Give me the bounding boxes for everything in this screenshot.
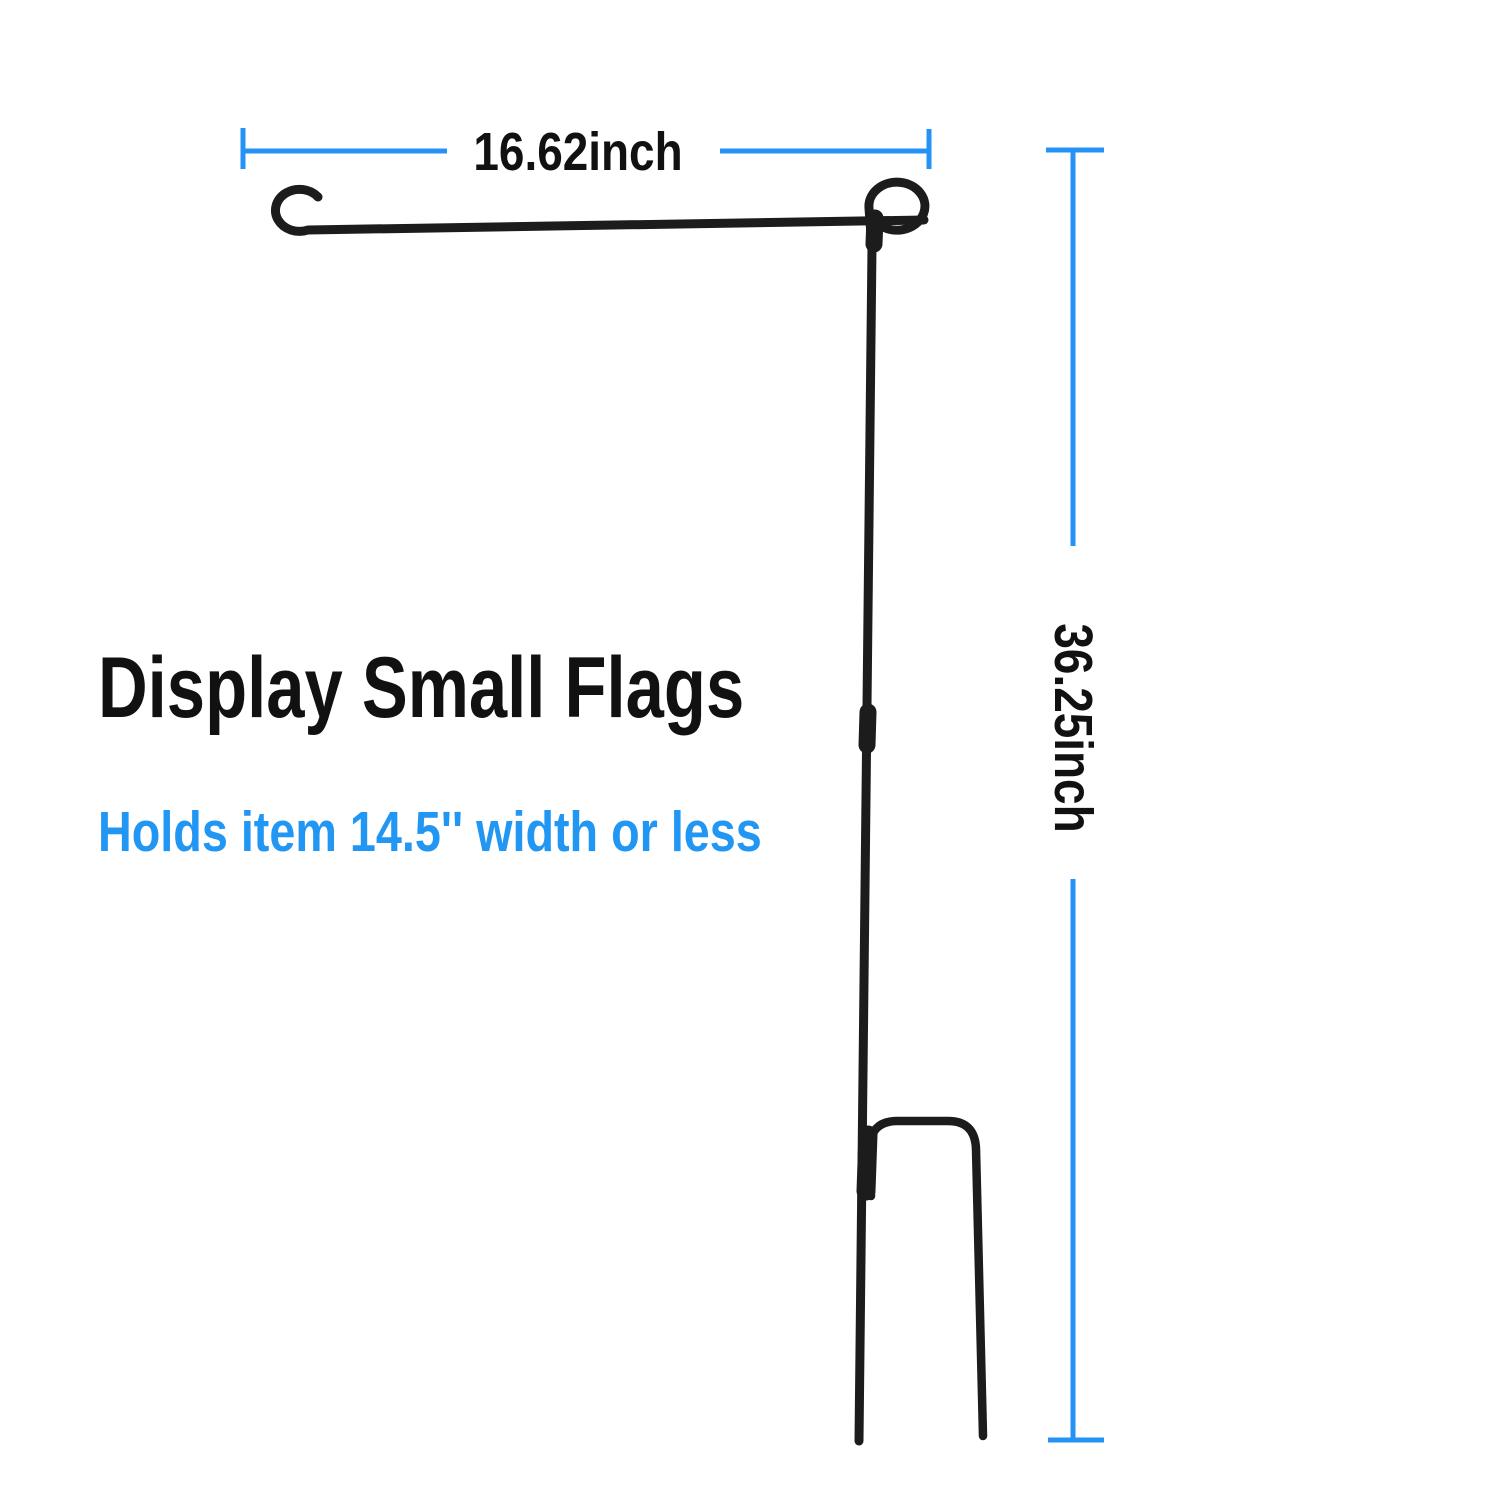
product-diagram-canvas: 16.62inch 36.25inch Display Small Flags … bbox=[0, 0, 1500, 1500]
subheadline-holds-item-width: Holds item 14.5'' width or less bbox=[98, 804, 762, 861]
fork-clamp-sleeve bbox=[866, 1135, 868, 1191]
flag-arm-and-hook bbox=[275, 189, 924, 231]
pole-top-ferrule bbox=[874, 218, 875, 244]
headline-display-small-flags: Display Small Flags bbox=[98, 645, 744, 731]
ground-fork-wire bbox=[870, 1121, 983, 1436]
height-dimension-label: 36.25inch bbox=[1046, 623, 1100, 832]
flag-pole bbox=[859, 246, 872, 1441]
pole-mid-connector bbox=[867, 712, 868, 745]
flag-stand-illustration bbox=[0, 0, 1500, 1500]
width-dimension-label: 16.62inch bbox=[473, 125, 682, 179]
